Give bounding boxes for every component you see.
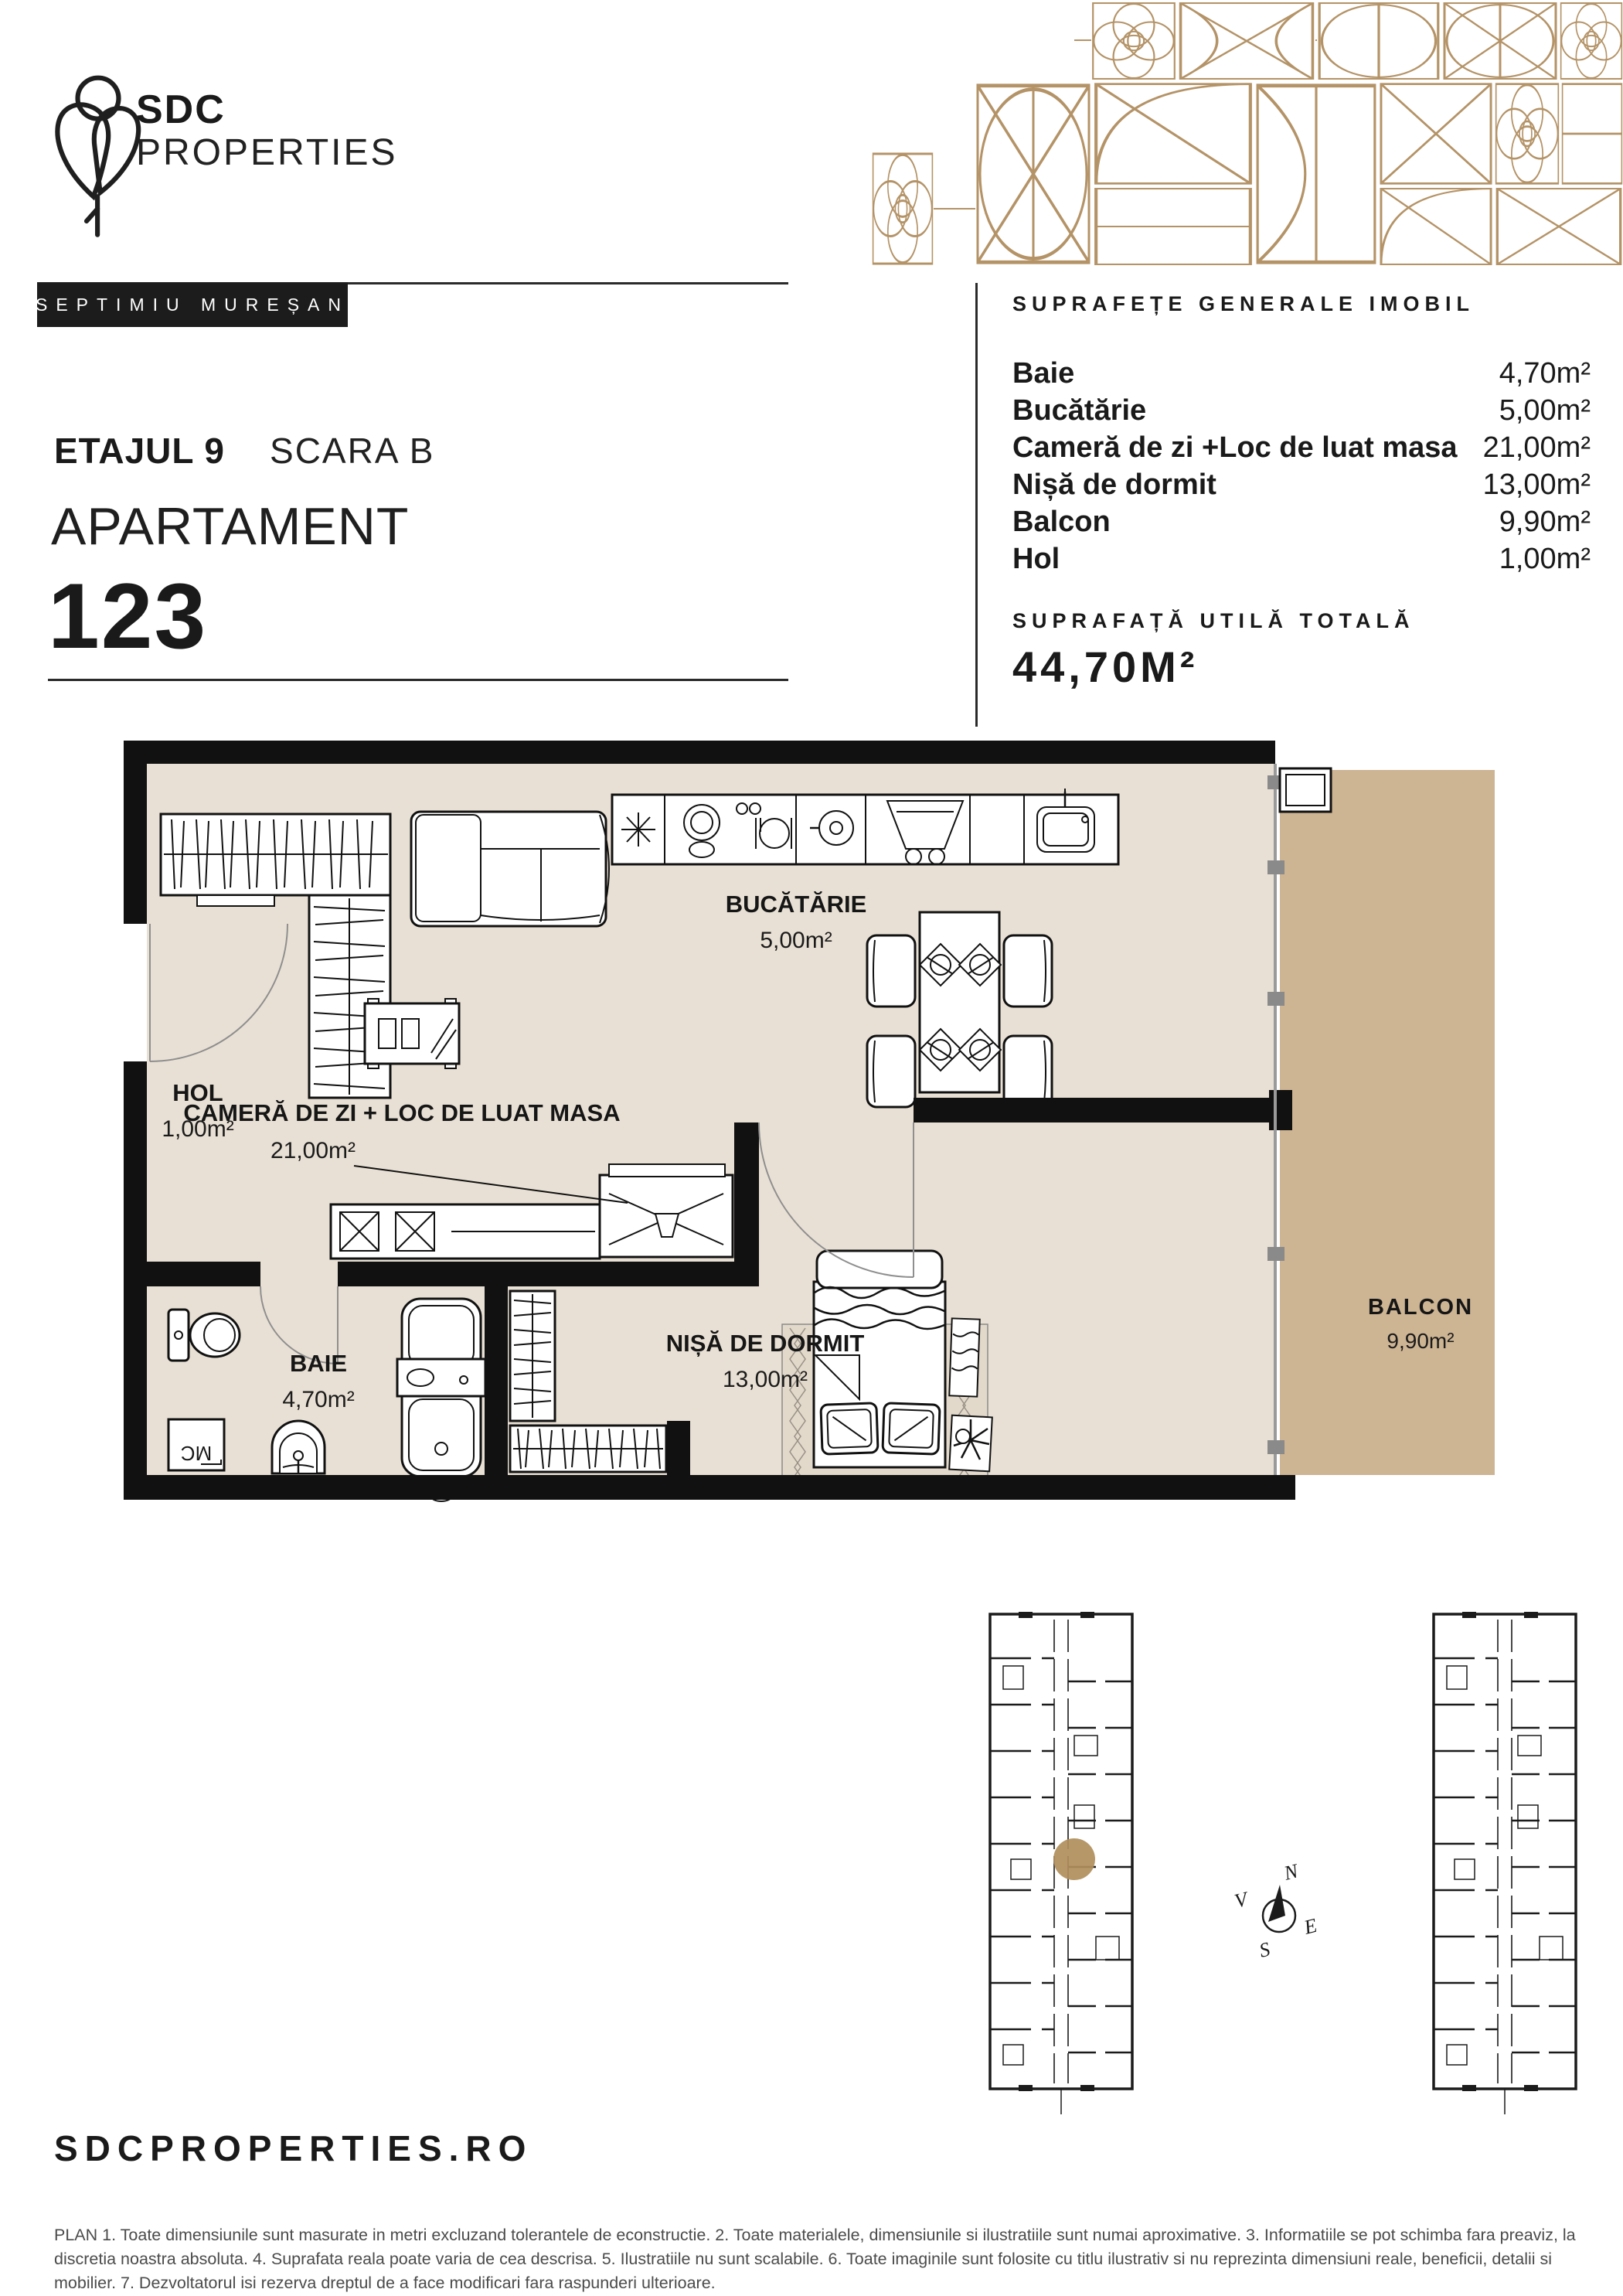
row-label: Balcon [1012, 506, 1111, 539]
row-label: Nișă de dormit [1012, 468, 1216, 502]
total-area-title: SUPRAFAȚĂ UTILĂ TOTALĂ [1012, 609, 1414, 633]
row-label: Bucătărie [1012, 394, 1146, 428]
balcony-floor [1280, 770, 1495, 1475]
living-label: CAMERĂ DE ZI + LOC DE LUAT MASA [183, 1099, 620, 1126]
tv-unit [600, 1164, 733, 1257]
total-area-value: 44,70M² [1012, 642, 1198, 692]
brand-name-line2: PROPERTIES [136, 131, 398, 174]
compass-icon: N V E S [1232, 1859, 1319, 1962]
floor-label: ETAJUL 9 [54, 430, 225, 472]
toilet [168, 1310, 240, 1361]
storage-cabinet [331, 1204, 600, 1259]
kitchen-area: 5,00m² [760, 928, 832, 953]
brochure-page: SDC PROPERTIES [0, 0, 1623, 2296]
compass-west: V [1232, 1887, 1251, 1913]
gold-ornament [835, 0, 1623, 271]
bathroom-sink [272, 1421, 325, 1473]
surface-table-title: SUPRAFEȚE GENERALE IMOBIL [1012, 292, 1475, 316]
table-row: Balcon 9,90m² [1012, 506, 1591, 543]
disclaimer-text: PLAN 1. Toate dimensiunile sunt masurate… [54, 2223, 1588, 2296]
title-rule [48, 679, 788, 681]
site-key-plans: N V E S [966, 1593, 1623, 2118]
bed [814, 1251, 945, 1467]
surface-table: Baie 4,70m² Bucătărie 5,00m² Cameră de z… [1012, 357, 1591, 580]
row-value: 5,00m² [1499, 394, 1591, 428]
unit-type-title: APARTAMENT [51, 496, 409, 557]
floor-plan: MC [124, 741, 1499, 1521]
washing-machine-label: MC [181, 1442, 212, 1465]
compass-east: E [1301, 1914, 1319, 1939]
row-value: 13,00m² [1483, 468, 1591, 502]
balcony-area: 9,90m² [1387, 1329, 1454, 1353]
living-area: 21,00m² [270, 1138, 356, 1163]
row-value: 9,90m² [1499, 506, 1591, 539]
table-row: Baie 4,70m² [1012, 357, 1591, 394]
row-value: 21,00m² [1483, 431, 1591, 465]
vertical-divider [975, 283, 978, 727]
unit-number: 123 [48, 563, 207, 669]
kitchen-label: BUCĂTĂRIE [726, 891, 867, 918]
website-url: SDCPROPERTIES.RO [54, 2127, 532, 2169]
row-label: Hol [1012, 543, 1060, 576]
building-plan-right [1434, 1612, 1576, 2114]
compass-north: N [1281, 1859, 1301, 1885]
washing-machine: MC [168, 1419, 224, 1470]
bathroom-area: 4,70m² [282, 1387, 354, 1412]
hall-area: 1,00m² [162, 1116, 233, 1142]
coffee-cabinet [365, 999, 459, 1068]
agent-name: SEPTIMIU MUREȘAN [36, 295, 349, 315]
floor-line: ETAJUL 9 SCARA B [54, 430, 434, 472]
sofa [411, 812, 609, 926]
kitchen-counter [612, 789, 1118, 864]
throw-blanket [949, 1318, 979, 1396]
table-row: Cameră de zi +Loc de luat masa 21,00m² [1012, 431, 1591, 468]
freezer-icon [621, 812, 655, 847]
sleeping-label: NIȘĂ DE DORMIT [666, 1330, 865, 1357]
hall-label: HOL [172, 1079, 223, 1106]
brand-name-line1: SDC [136, 87, 226, 133]
sleeping-area: 13,00m² [723, 1367, 808, 1392]
header-rule [348, 282, 788, 284]
plant [949, 1415, 992, 1472]
balcony-label: BALCON [1368, 1295, 1473, 1320]
row-value: 4,70m² [1499, 357, 1591, 390]
bathroom-label: BAIE [290, 1350, 347, 1377]
row-label: Cameră de zi +Loc de luat masa [1012, 431, 1458, 465]
row-value: 1,00m² [1499, 543, 1591, 576]
row-label: Baie [1012, 357, 1074, 390]
staircase-label: SCARA B [270, 430, 434, 472]
agent-name-bar: SEPTIMIU MUREȘAN [37, 282, 348, 327]
unit-location-dot [1053, 1838, 1095, 1880]
table-row: Hol 1,00m² [1012, 543, 1591, 580]
table-row: Nișă de dormit 13,00m² [1012, 468, 1591, 506]
bathtub [397, 1299, 485, 1501]
compass-south: S [1257, 1938, 1272, 1962]
table-row: Bucătărie 5,00m² [1012, 394, 1591, 431]
